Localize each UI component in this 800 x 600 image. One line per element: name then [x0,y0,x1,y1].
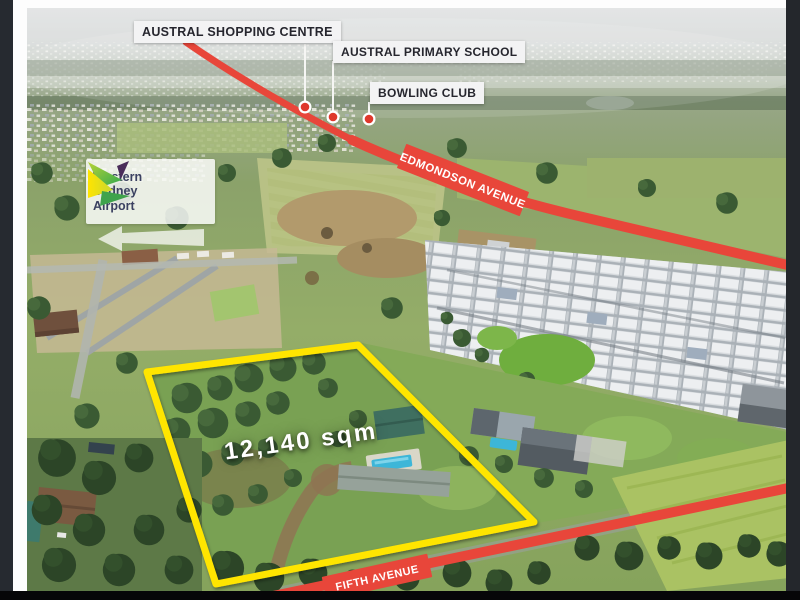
listing-photo-viewer: EDMONDSON AVENUE FIFTH AVENUE [0,0,800,600]
viewer-right-gutter [786,0,800,591]
viewer-bottom-gutter [0,591,800,600]
viewer-left-gutter [0,0,13,591]
airport-direction-arrow [98,226,204,251]
aerial-photo[interactable]: EDMONDSON AVENUE FIFTH AVENUE [27,8,786,591]
edmondson-road-label: EDMONDSON AVENUE [398,151,527,211]
edmondson-road-plate: EDMONDSON AVENUE [396,143,530,216]
poi-label-shopping-centre: AUSTRAL SHOPPING CENTRE [134,21,341,43]
edmondson-road-line [186,42,352,140]
poi-marker-shopping-centre [301,103,310,112]
airport-logo-card: Western Sydney Airport [86,159,215,224]
poi-label-primary-school: AUSTRAL PRIMARY SCHOOL [333,41,525,63]
poi-markers [299,101,376,126]
airport-logo-icon [86,159,132,207]
photo-frame-left [13,0,27,591]
poi-label-bowling-club: BOWLING CLUB [370,82,484,104]
poi-marker-primary-school [329,113,338,122]
photo-frame-top [13,0,786,8]
poi-marker-bowling-club [365,115,374,124]
